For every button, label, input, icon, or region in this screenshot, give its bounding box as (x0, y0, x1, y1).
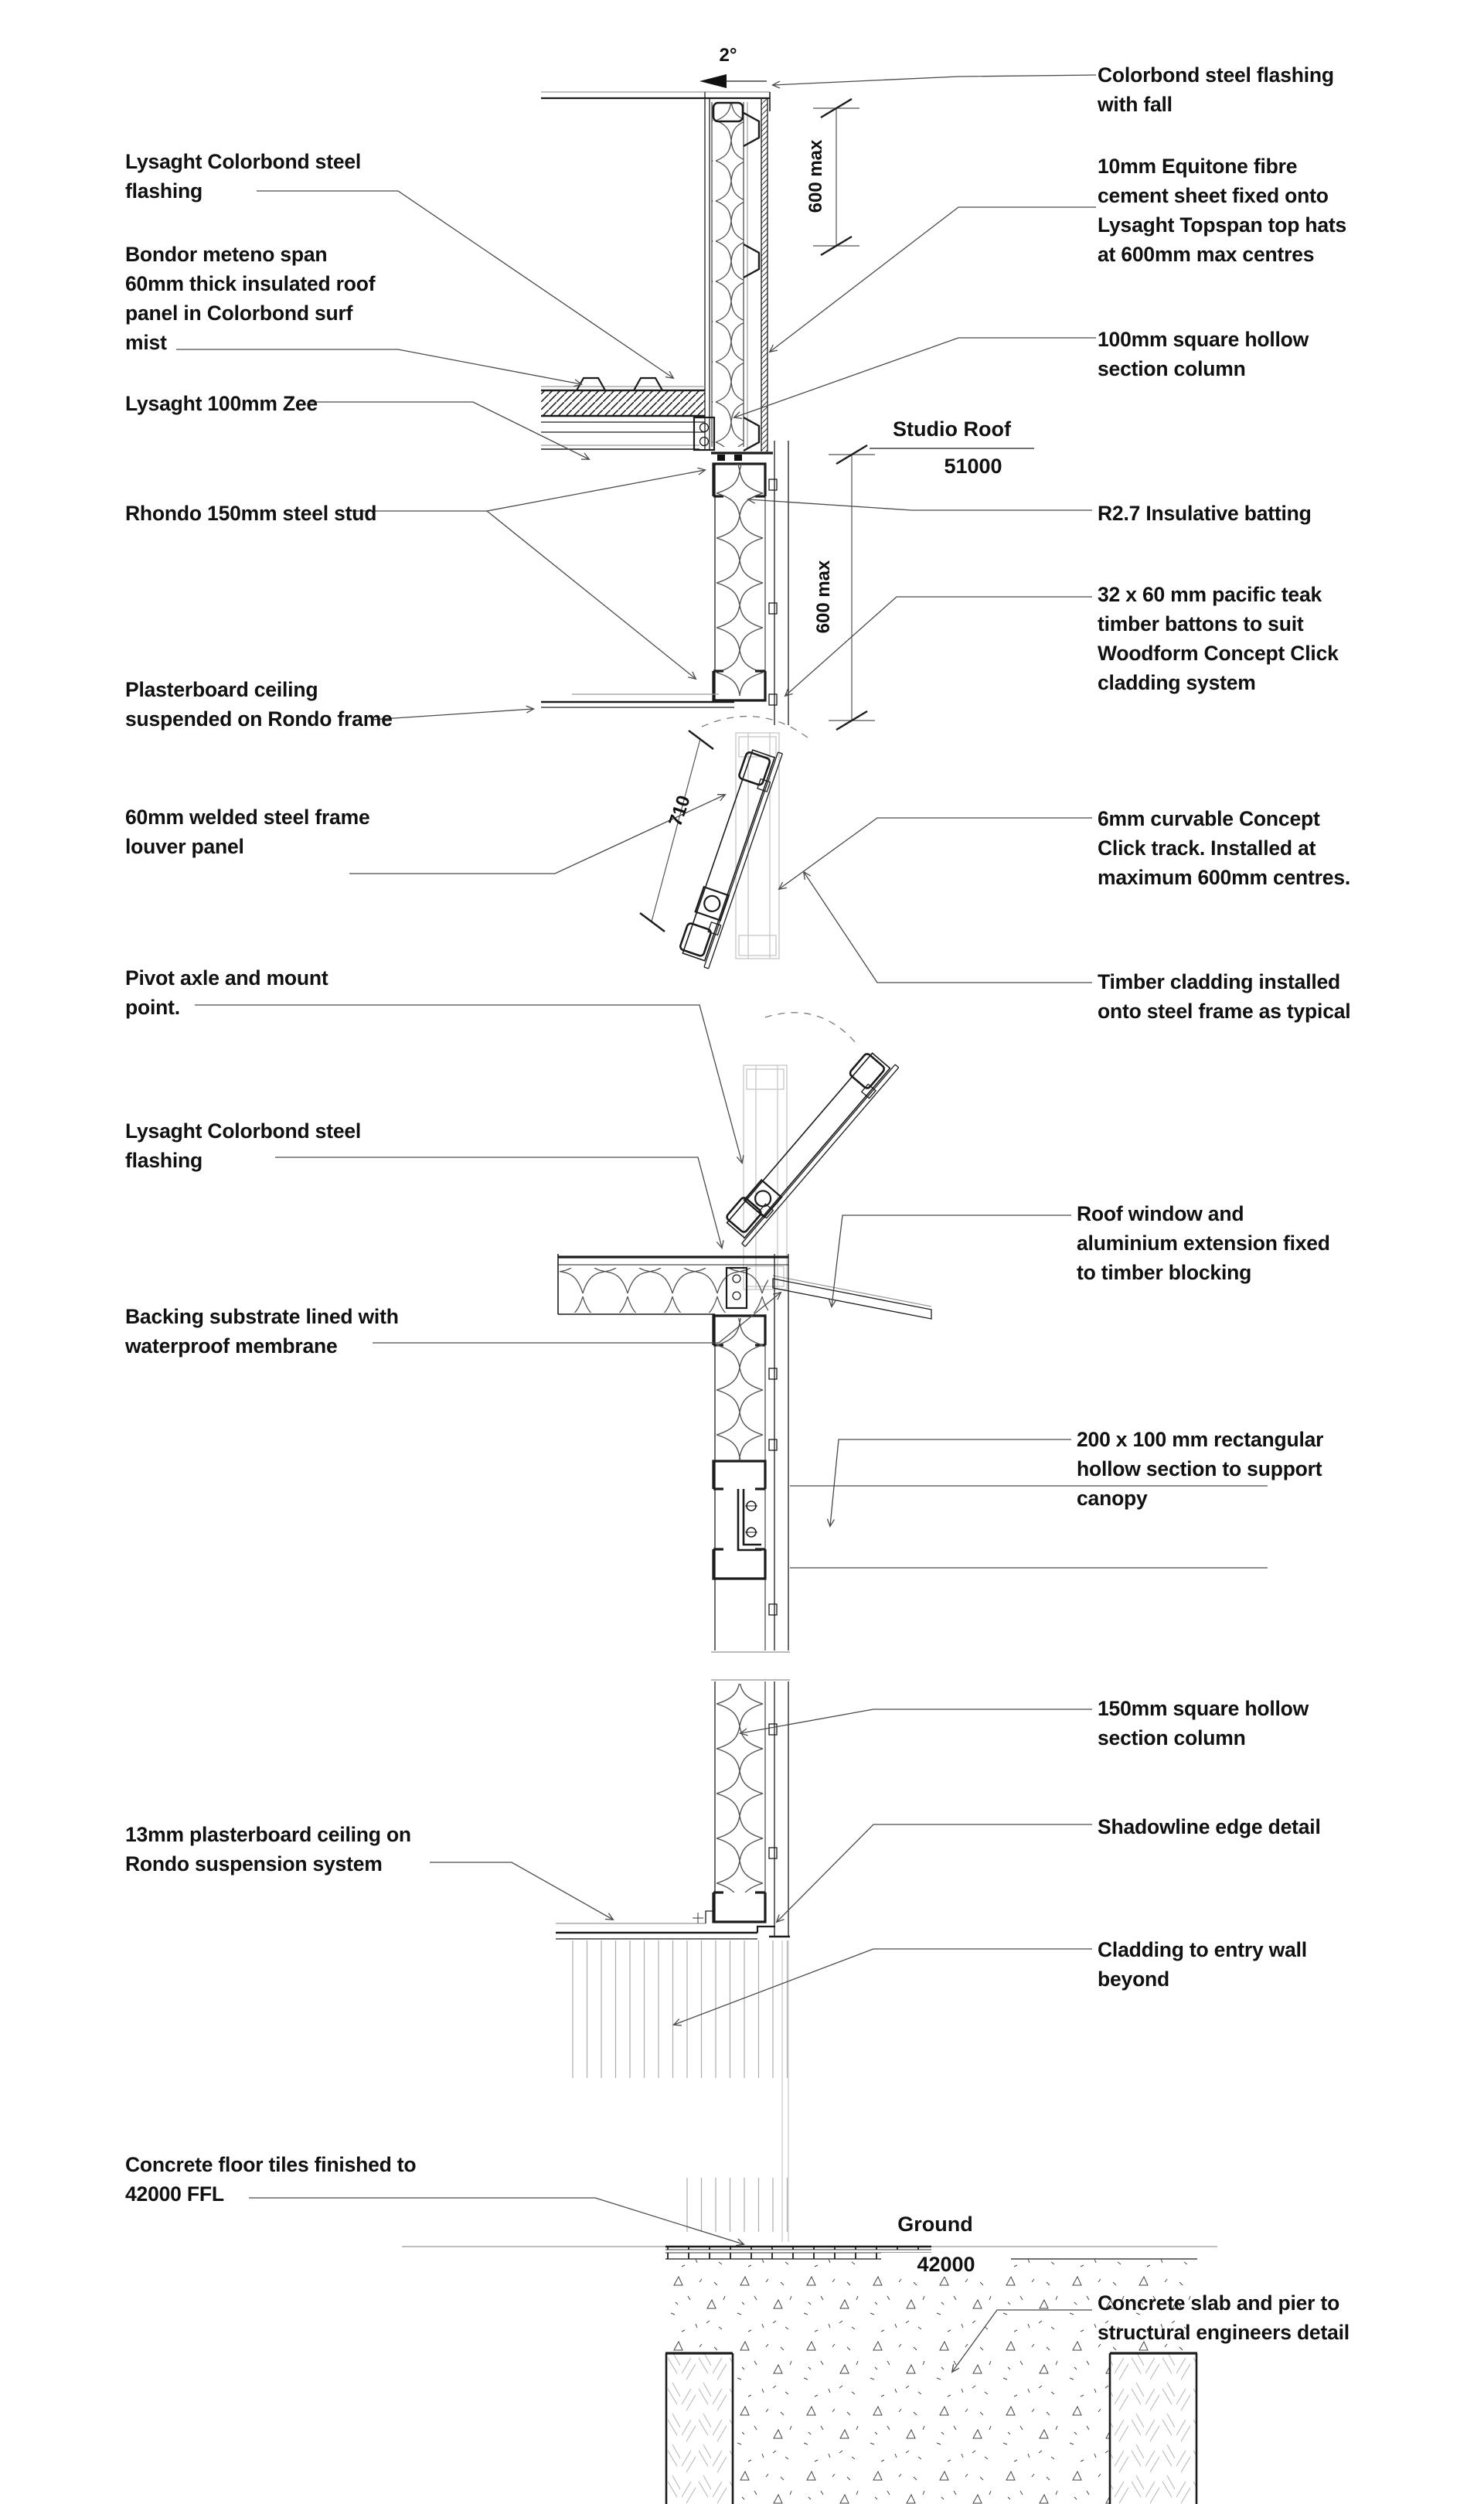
canopy-roof (558, 1254, 788, 1314)
section-break (711, 1652, 790, 1680)
label-200x100-rhs: 200 x 100 mm rectangular hollow section … (1077, 1425, 1323, 1513)
label-equitone: 10mm Equitone fibre cement sheet fixed o… (1098, 152, 1346, 269)
label-pivot-axle: Pivot axle and mount point. (125, 963, 328, 1022)
label-100mm-shs: 100mm square hollow section column (1098, 325, 1309, 383)
level-studio-roof-elevation: 51000 (912, 455, 1034, 479)
label-13mm-plasterboard: 13mm plasterboard ceiling on Rondo suspe… (125, 1820, 411, 1879)
zee-purlin (541, 417, 714, 450)
label-colorbond-fall: Colorbond steel flashing with fall (1098, 60, 1334, 119)
dimension-600-mid (829, 445, 875, 730)
roof-fall-arrow (699, 74, 767, 88)
swing-arc-2 (765, 1013, 856, 1044)
label-150mm-shs: 150mm square hollow section column (1098, 1694, 1309, 1753)
label-click-track: 6mm curvable Concept Click track. Instal… (1098, 804, 1350, 892)
label-rhondo-stud: Rhondo 150mm steel stud (125, 499, 376, 528)
label-concrete-slab: Concrete slab and pier to structural eng… (1098, 2288, 1350, 2347)
label-lysaght-flashing-top: Lysaght Colorbond steel flashing (125, 147, 361, 206)
label-r27-batting: R2.7 Insulative batting (1098, 499, 1312, 528)
level-ground-elevation: 42000 (881, 2253, 1011, 2277)
label-backing-substrate: Backing substrate lined with waterproof … (125, 1302, 399, 1361)
label-shadowline: Shadowline edge detail (1098, 1812, 1321, 1841)
level-ground-name: Ground (866, 2213, 1005, 2237)
label-plasterboard-ceiling: Plasterboard ceiling suspended on Rondo … (125, 675, 393, 734)
section-detail-drawing: Lysaght Colorbond steel flashing Bondor … (0, 0, 1484, 2504)
insulated-roof-panel (541, 378, 705, 416)
label-floor-tiles: Concrete floor tiles finished to 42000 F… (125, 2150, 416, 2209)
suspended-ceiling (541, 694, 734, 707)
pier-right (1110, 2353, 1197, 2504)
dim-roof-fall-angle: 2° (705, 45, 751, 66)
label-cladding-beyond: Cladding to entry wall beyond (1098, 1935, 1307, 1994)
dim-600-max-top: 600 max (805, 126, 827, 227)
label-zee: Lysaght 100mm Zee (125, 389, 318, 418)
label-lysaght-flashing-mid: Lysaght Colorbond steel flashing (125, 1116, 361, 1175)
dim-600-max-mid: 600 max (813, 547, 835, 647)
level-studio-roof-name: Studio Roof (870, 417, 1034, 441)
upper-wall (711, 441, 788, 725)
lower-ceiling (556, 1911, 790, 1939)
cladding-beyond (567, 1940, 798, 2242)
parapet-wall (705, 98, 768, 451)
label-timber-cladding: Timber cladding installed onto steel fra… (1098, 967, 1350, 1026)
label-roof-window: Roof window and aluminium extension fixe… (1077, 1199, 1330, 1287)
label-louver-panel: 60mm welded steel frame louver panel (125, 802, 370, 861)
roof-window-glazing (773, 1276, 931, 1319)
lower-wall (713, 1681, 788, 1937)
label-teak-battens: 32 x 60 mm pacific teak timber battons t… (1098, 580, 1339, 697)
pier-left (665, 2353, 733, 2504)
mid-wall (713, 1254, 788, 1651)
label-bondor-panel: Bondor meteno span 60mm thick insulated … (125, 240, 375, 357)
louver-panel-1 (676, 743, 782, 969)
